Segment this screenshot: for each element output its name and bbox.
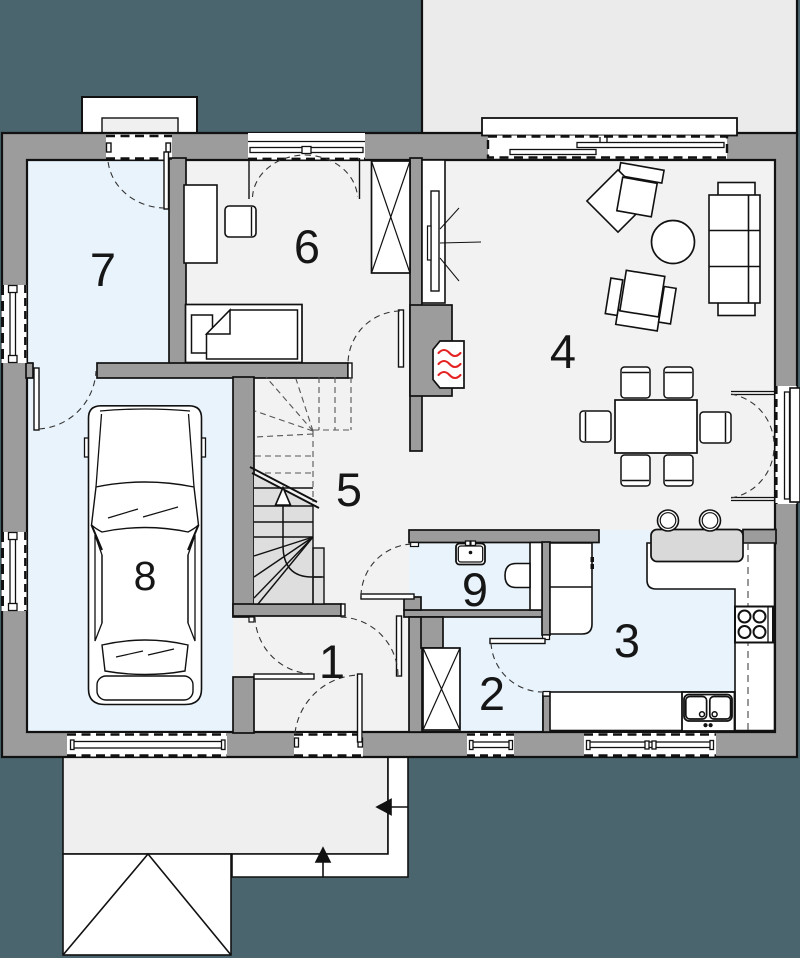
- svg-text:7: 7: [90, 243, 116, 296]
- svg-text:3: 3: [614, 614, 640, 667]
- svg-text:2: 2: [479, 667, 505, 720]
- svg-text:9: 9: [462, 563, 488, 616]
- svg-text:4: 4: [550, 325, 576, 378]
- svg-text:5: 5: [336, 463, 362, 516]
- svg-text:6: 6: [294, 220, 320, 273]
- svg-text:1: 1: [319, 635, 345, 688]
- svg-text:8: 8: [134, 553, 157, 599]
